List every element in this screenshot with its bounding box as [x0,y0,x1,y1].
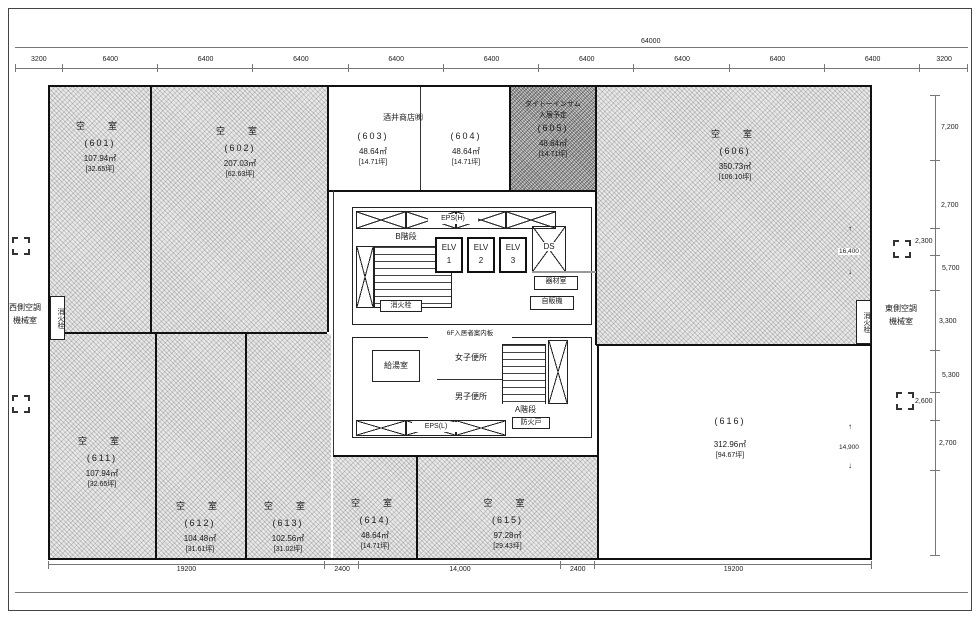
room-area: 48.64㎡ [424,146,508,158]
room-status: 空 室 [54,435,150,449]
dim-right: 7,200 [940,124,960,131]
wall [595,87,597,345]
room-tsubo: [31.61坪] [157,545,243,556]
wall [327,87,329,332]
elevator-3: ELV 3 [499,237,527,273]
west-hydrant-shaft: 消火栓 [50,296,65,340]
dim-right: 5,300 [941,372,961,379]
equipment-room-box: 器材室 [534,276,578,290]
dim-seg: 6400 [349,56,444,69]
room-status: 空 室 [185,125,295,139]
room-area: 48.64㎡ [512,138,594,150]
dim-tick [930,392,940,393]
shaft-xbox [356,420,406,436]
room-area: 350.73㎡ [660,161,810,173]
dim-seg: 19200 [48,564,325,577]
dim-line-overall-bottom [15,592,968,593]
span-upper-dim: 16,400 [838,248,860,255]
room-604-label: (604) 48.64㎡ [14.71坪] [424,130,508,169]
room-601-label: 空 室 (601) 107.94㎡ [32.65坪] [55,120,145,176]
stair-b-label: B階段 [383,231,429,242]
room-area: 102.56㎡ [247,533,329,545]
wall [597,345,599,558]
arrow-up-icon: ↑ [848,225,852,233]
dim-seg: 6400 [825,56,920,69]
room-area: 104.48㎡ [157,533,243,545]
dim-tick [930,555,940,556]
eps-upper-label: EPS(H) [428,214,478,224]
column-marker [12,237,30,255]
dim-seg: 14,000 [359,564,560,577]
arrow-down-icon: ↓ [848,268,852,276]
room-611-label: 空 室 (611) 107.94㎡ [32.65坪] [54,435,150,491]
dim-tick [930,95,940,96]
elevator-2: ELV 2 [467,237,495,273]
corridor-wall [333,190,334,455]
room-area: 207.03㎡ [185,158,295,170]
kitchenette-label: 給湯室 [374,360,418,371]
room-status: 空 室 [55,120,145,134]
floor-plan-6f: 64000 3200 6400 6400 6400 6400 6400 6400… [0,0,980,619]
stair-a-label: A階段 [498,404,553,415]
room-605-label: ダイトーインサム 入居予定 (605) 48.64㎡ [14.71坪] [512,100,594,161]
room-number: (615) [440,514,575,528]
toilet-divider [437,379,503,380]
room-tsubo: [14.71坪] [424,158,508,169]
wall [416,455,418,558]
room-tsubo: [94.67坪] [650,451,810,462]
eps-lower-label: EPS(L) [412,422,460,432]
room-606 [596,87,870,345]
east-machine-room-label: 東側空調 機械室 [878,303,924,329]
west-machine-room-line2: 機械室 [4,315,46,328]
ds-label: DS [538,242,560,251]
room-613-label: 空 室 (613) 102.56㎡ [31.02坪] [247,500,329,556]
dim-line-right [935,95,936,555]
corridor-line [532,271,596,273]
fire-door-box: 防火戸 [512,417,550,429]
shaft-xbox [456,420,506,436]
dim-tick [930,255,940,256]
room-status: 空 室 [157,500,243,514]
dim-seg: 6400 [444,56,539,69]
room-area: 97.28㎡ [440,530,575,542]
room-616-label: (616) 312.96㎡ [94.67坪] [650,415,810,462]
room-area: 107.94㎡ [55,153,145,165]
column-marker [896,392,914,410]
room-614-label: 空 室 (614) 48.64㎡ [14.71坪] [335,497,415,553]
room-area: 48.64㎡ [330,146,416,158]
dim-seg: 19200 [595,564,872,577]
room-602 [150,87,327,332]
room-603-label: (603) 48.64㎡ [14.71坪] [330,130,416,169]
room-tsubo: [62.63坪] [185,170,295,181]
dim-right: 2,300 [914,238,934,245]
room-tsubo: [14.71坪] [330,158,416,169]
dim-seg: 6400 [158,56,253,69]
wall [420,87,421,190]
tenant-name: ダイトーインサム [512,100,594,111]
info-board-label: 6F入居者案内板 [428,329,512,338]
dim-right: 5,700 [941,265,961,272]
room-number: (612) [157,517,243,531]
arrow-up-icon: ↑ [848,423,852,431]
room-area: 48.64㎡ [335,530,415,542]
dim-right: 2,600 [914,398,934,405]
tenant-note: 入居予定 [512,111,594,122]
east-machine-room-line1: 東側空調 [878,303,924,316]
room-number: (601) [55,137,145,151]
room-606-label: 空 室 (606) 350.73㎡ [106.10坪] [660,128,810,184]
east-hydrant-shaft: 消火栓 [856,300,871,344]
elevator-label: ELV [501,242,525,255]
elevator-number: 2 [469,255,493,268]
room-tsubo: [29.43坪] [440,542,575,553]
wall [50,332,327,334]
vending-machine-box: 自販機 [530,296,574,310]
dim-seg: 6400 [634,56,729,69]
dim-tick [930,420,940,421]
room-status: 空 室 [440,497,575,511]
wall [333,455,598,457]
dim-tick [930,350,940,351]
room-area: 107.94㎡ [54,468,150,480]
room-tsubo: [106.10坪] [660,173,810,184]
shaft-xbox [356,211,406,229]
stair-b-shaft [356,246,374,308]
room-status: 空 室 [247,500,329,514]
dim-overall-top: 64000 [640,38,661,45]
room-number: (603) [330,130,416,144]
dim-tick [930,160,940,161]
womens-toilet-label: 女子便所 [440,352,502,363]
wall [327,190,597,192]
room-tsubo: [31.02坪] [247,545,329,556]
dim-row-bottom: 19200 2400 14,000 2400 19200 [48,564,872,577]
dim-seg: 3200 [15,56,63,69]
arrow-down-icon: ↓ [848,462,852,470]
dim-tick [930,470,940,471]
dim-seg: 6400 [63,56,158,69]
dim-seg: 2400 [561,564,596,577]
dim-seg: 6400 [253,56,348,69]
room-status: 空 室 [335,497,415,511]
room-615-label: 空 室 (615) 97.28㎡ [29.43坪] [440,497,575,553]
room-tsubo: [14.71坪] [335,542,415,553]
dim-tick [930,290,940,291]
room-number: (616) [650,415,810,429]
dim-tick [930,228,940,229]
room-number: (604) [424,130,508,144]
room-tsubo: [14.71坪] [512,150,594,161]
room-area: 312.96㎡ [650,439,810,451]
room-612-label: 空 室 (612) 104.48㎡ [31.61坪] [157,500,243,556]
elevator-number: 3 [501,255,525,268]
room-number: (614) [335,514,415,528]
mens-toilet-label: 男子便所 [440,391,502,402]
room-number: (613) [247,517,329,531]
dim-seg: 6400 [539,56,634,69]
dim-right: 3,300 [938,318,958,325]
elevator-label: ELV [437,242,461,255]
span-lower-dim: 14,900 [838,444,860,451]
column-marker [12,395,30,413]
dim-seg: 6400 [730,56,825,69]
dim-seg: 2400 [325,564,360,577]
dim-right: 2,700 [938,440,958,447]
room-number: (611) [54,452,150,466]
fire-hydrant-box: 消火栓 [380,300,422,312]
room-tsubo: [32.65坪] [55,165,145,176]
tenant-name-over-603-604: 酒井商店㈱ [382,112,424,123]
east-machine-room-line2: 機械室 [878,316,924,329]
wall [509,87,511,190]
elevator-label: ELV [469,242,493,255]
dim-right: 2,700 [940,202,960,209]
room-number: (605) [512,122,594,136]
room-tsubo: [32.65坪] [54,480,150,491]
column-marker [893,240,911,258]
dim-line-overall-top [15,47,968,48]
elevator-1: ELV 1 [435,237,463,273]
west-machine-room-label: 西側空調 機械室 [4,302,46,328]
room-602-label: 空 室 (602) 207.03㎡ [62.63坪] [185,125,295,181]
room-number: (606) [660,145,810,159]
west-machine-room-line1: 西側空調 [4,302,46,315]
dim-seg: 3200 [920,56,968,69]
wall [596,344,872,346]
dim-row-top: 3200 6400 6400 6400 6400 6400 6400 6400 … [15,56,968,69]
wall [150,87,152,332]
stair-a-shaft [548,340,568,404]
elevator-number: 1 [437,255,461,268]
room-number: (602) [185,142,295,156]
room-status: 空 室 [660,128,810,142]
